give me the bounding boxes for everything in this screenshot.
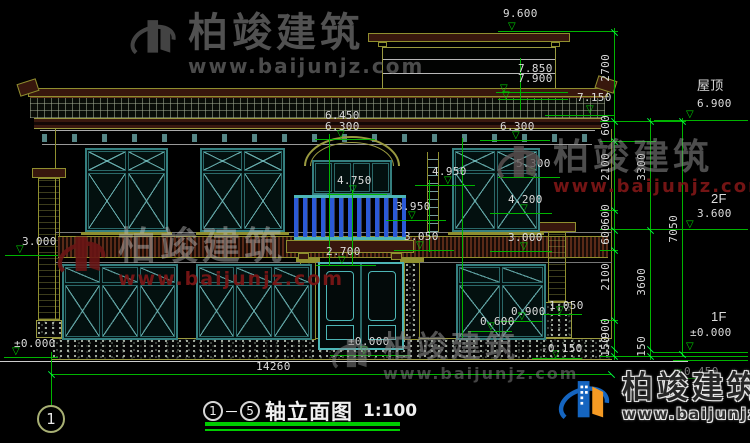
ext-line-6300 [600, 141, 656, 142]
ground-line [0, 361, 688, 362]
dim-value-3600: 3600 [636, 268, 647, 296]
level-neg0150: -0.150 [541, 343, 583, 354]
overall-dim-line [51, 374, 611, 375]
level-2700-marker-line [316, 265, 376, 266]
window-1f-left [62, 264, 178, 340]
axis-range-dash: － [224, 401, 239, 422]
balcony-bracket-left [298, 253, 309, 260]
watermark-top: 柏竣建筑www.baijunjz.com [128, 12, 424, 78]
level-marker-icon: ▽ [502, 91, 510, 101]
dim-chain-line-3 [682, 118, 683, 356]
ext-line-ground [600, 356, 748, 357]
roof-tile-field [30, 97, 605, 118]
level-marker-icon: ▽ [686, 110, 694, 120]
brand-building-logo-icon [128, 12, 180, 68]
floor-2f-level: 3.600 [697, 208, 732, 219]
title-underline-thin [205, 429, 400, 431]
drawing-scale: 1:100 [363, 401, 417, 421]
level-3000-l-marker-line [5, 255, 58, 256]
dim-value-3300: 3300 [636, 153, 647, 181]
level-3050: 3.050 [404, 231, 439, 242]
tower-top-slab [368, 33, 570, 42]
floor-roof-level: 6.900 [697, 98, 732, 109]
level-marker-icon: ▽ [674, 369, 682, 379]
level-4950: 4.950 [432, 166, 467, 177]
level-6300-r: 6.300 [500, 121, 535, 132]
balcony-bracket-right [391, 253, 402, 260]
dim-value-2100: 2100 [600, 263, 611, 291]
level-marker-icon: ▽ [586, 105, 594, 115]
level-7150: 7.150 [577, 92, 612, 103]
level-9600-marker-line [498, 31, 618, 32]
level-marker-icon: ▽ [686, 342, 694, 352]
balcony-balustrade [294, 195, 406, 240]
window-2f-mid [200, 148, 285, 232]
total-width: 14260 [256, 361, 291, 372]
brand-building-logo-icon [556, 372, 614, 434]
window-1f-mid [196, 264, 312, 340]
level-9600: 9.600 [503, 8, 538, 19]
level-1050: 1.050 [549, 300, 584, 311]
level-3050-marker-line [394, 250, 454, 251]
floor-1f-level: ±0.000 [690, 327, 732, 338]
level-7900: 7.900 [518, 73, 553, 84]
window-1f-right [456, 264, 546, 340]
right-pedestal-shaft [548, 232, 566, 302]
level-marker-icon: ▽ [686, 220, 694, 230]
elevation-drawing-canvas: 9.600▽7.850▽7.900▽7.150▽6.4506.300▽6.300… [0, 0, 750, 443]
window-2f-left [85, 148, 168, 232]
level-marker-icon: ▽ [508, 22, 516, 32]
dim-chain-line-2 [650, 118, 651, 360]
leader-axis-line [51, 352, 52, 405]
ext-line-sub [673, 360, 748, 361]
dim-value-2100: 2100 [600, 153, 611, 181]
floor-1f-label: 1F [711, 311, 727, 322]
dim-value-600: 600 [600, 224, 611, 245]
level-6300-c: 6.300 [325, 121, 360, 132]
axis-end-bubble: 5 [240, 401, 260, 421]
level-0000-l: ±0.000 [14, 338, 56, 349]
level-3000-l: 3.000 [22, 236, 57, 247]
title-underline-thick [205, 422, 400, 426]
level-4750: 4.750 [337, 175, 372, 186]
level-3950: 3.950 [396, 201, 431, 212]
watermark-url-text: www.baijunjz.com [188, 54, 424, 78]
level-4200: 4.200 [508, 194, 543, 205]
level-2700: 2.700 [326, 246, 361, 257]
level-6300-c-marker-line [315, 139, 375, 140]
level-5300: 5.300 [516, 158, 551, 169]
level-0000-door: ±0.000 [348, 336, 390, 347]
level-0000-door-marker-line [330, 355, 410, 356]
level-3000-r: 3.000 [508, 232, 543, 243]
dim-value-600: 600 [600, 204, 611, 225]
dim-value-150: 150 [600, 336, 611, 357]
right-pedestal-cap [538, 222, 576, 232]
level-4750-marker-line [327, 194, 387, 195]
floor-1f-level-marker-line [654, 352, 748, 353]
door-pier-right [404, 262, 420, 340]
level-0000-l-marker-line [4, 357, 58, 358]
level-3950-marker-line [386, 220, 446, 221]
level-0600: 0.600 [480, 316, 515, 327]
level-0450: 0.450 [684, 366, 719, 377]
floor-roof-level-marker-line [654, 120, 748, 121]
watermark-url-text: www.baijunjz.com [383, 364, 578, 383]
dim-value-2700: 2700 [600, 54, 611, 82]
watermark-brand-text: 柏竣建筑 [553, 138, 750, 176]
axis-bubble-number: 1 [46, 410, 56, 428]
watermark-logo-corner: 柏竣建筑www.baijunjz.com [556, 372, 750, 434]
level-0900: 0.900 [511, 306, 546, 317]
dim-value-600: 600 [600, 115, 611, 136]
dim-value-150: 150 [636, 336, 647, 357]
axis-start-bubble: 1 [203, 401, 223, 421]
watermark-url-text: www.baijunjz.com [622, 405, 750, 423]
floor-2f-label: 2F [711, 193, 727, 204]
floor-roof-label: 屋顶 [697, 80, 724, 91]
dim-chain-line-1 [614, 28, 615, 360]
dim-value-7050: 7050 [668, 215, 679, 243]
axis-bubble-1: 1 [37, 405, 65, 433]
